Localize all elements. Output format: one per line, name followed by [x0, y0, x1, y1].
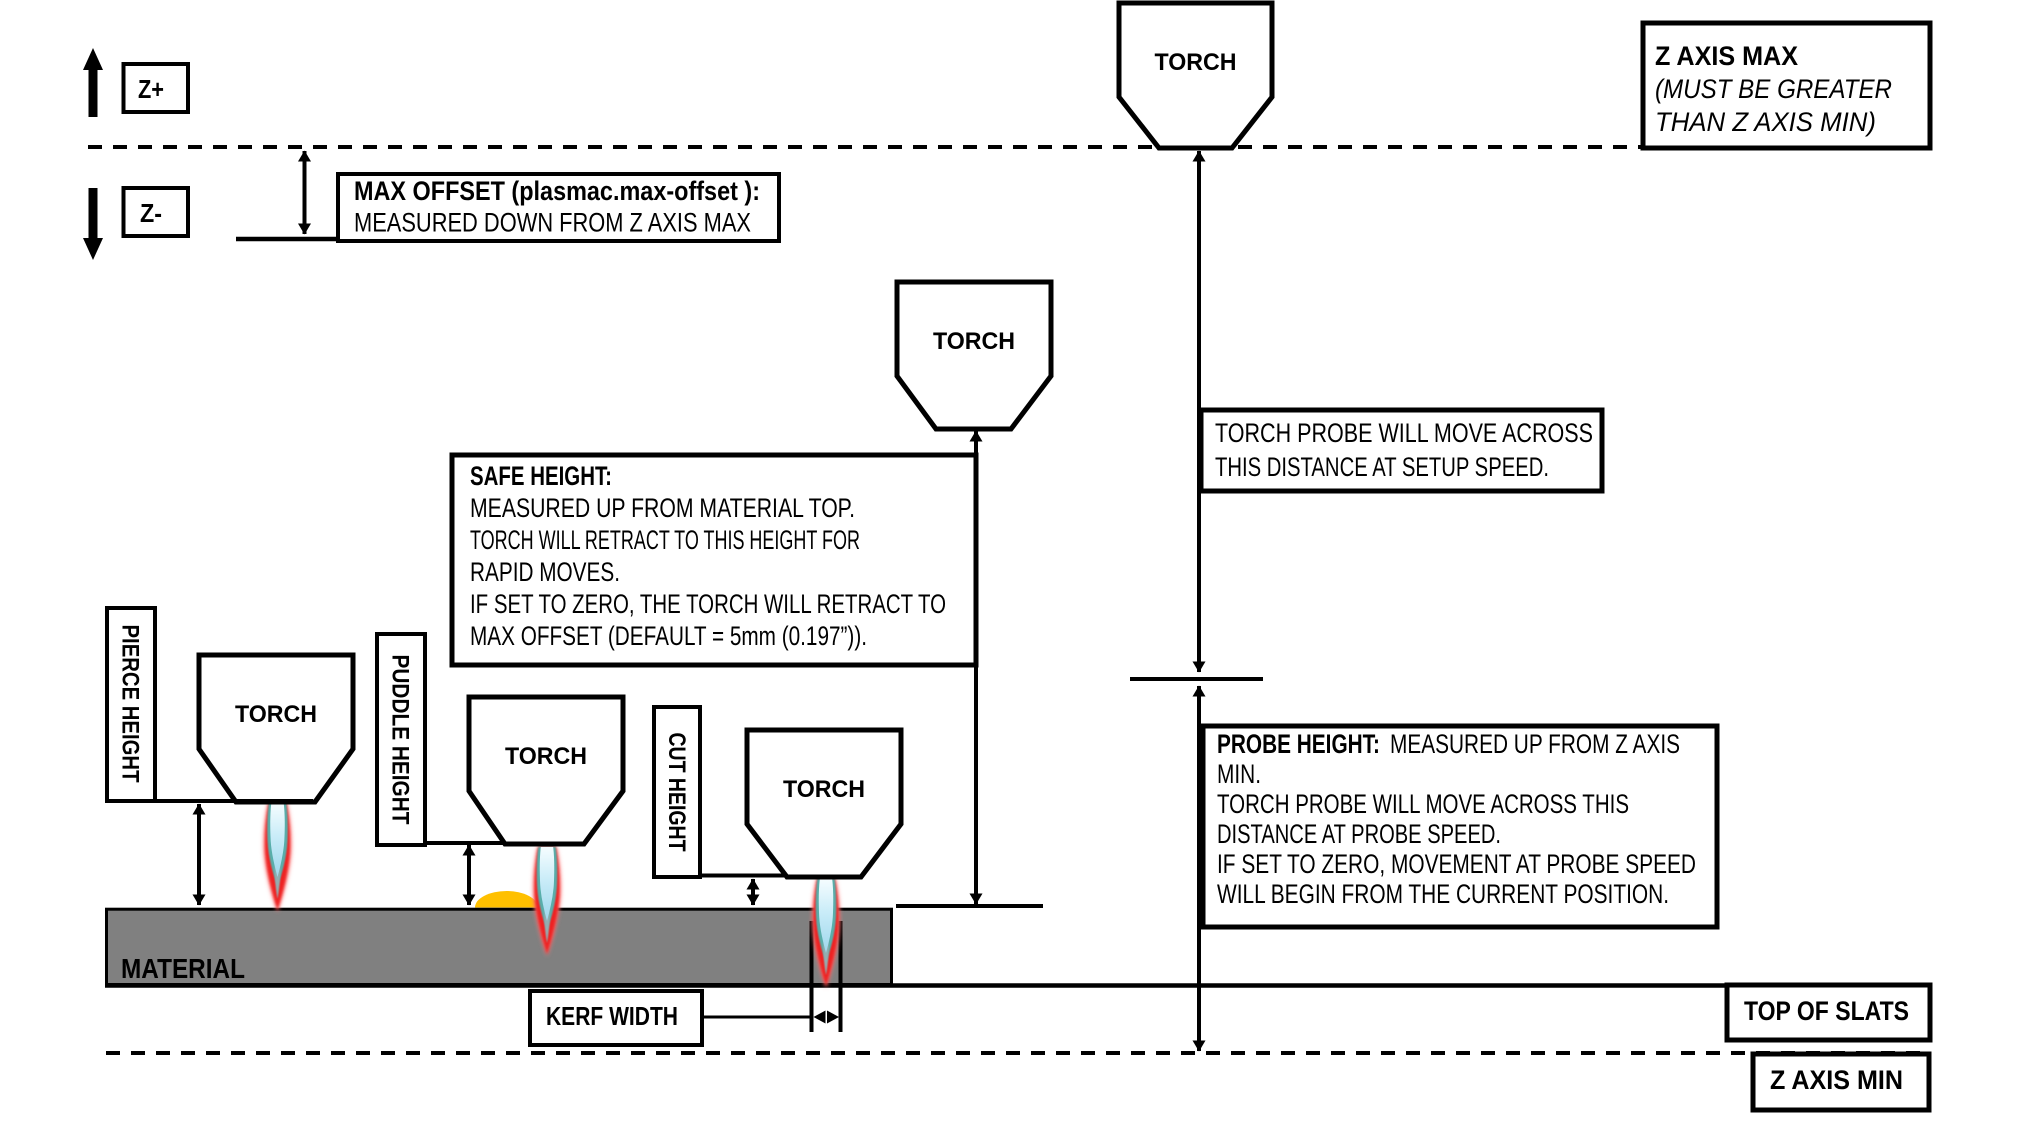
svg-text:RAPID MOVES.: RAPID MOVES. — [470, 557, 620, 587]
svg-text:Z AXIS MAX: Z AXIS MAX — [1655, 41, 1798, 71]
svg-text:MIN.: MIN. — [1217, 759, 1261, 789]
svg-text:SAFE HEIGHT:: SAFE HEIGHT: — [470, 461, 612, 491]
svg-text:KERF WIDTH: KERF WIDTH — [546, 1001, 678, 1031]
svg-text:IF SET TO ZERO, MOVEMENT AT P: IF SET TO ZERO, MOVEMENT AT PROBE SPEED — [1217, 849, 1696, 879]
svg-text:MEASURED UP FROM Z AXIS: MEASURED UP FROM Z AXIS — [1390, 729, 1680, 759]
svg-text:THAN Z AXIS MIN): THAN Z AXIS MIN) — [1655, 107, 1876, 137]
svg-text:TORCH: TORCH — [933, 328, 1015, 355]
svg-text:TORCH PROBE WILL MOVE ACROSS T: TORCH PROBE WILL MOVE ACROSS THIS — [1217, 789, 1629, 819]
svg-text:CUT HEIGHT: CUT HEIGHT — [663, 733, 690, 852]
svg-text:PROBE HEIGHT:: PROBE HEIGHT: — [1217, 729, 1380, 759]
svg-text:PUDDLE HEIGHT: PUDDLE HEIGHT — [387, 655, 414, 825]
svg-text:PIERCE HEIGHT: PIERCE HEIGHT — [117, 625, 144, 783]
svg-text:TORCH WILL RETRACT TO THIS HEI: TORCH WILL RETRACT TO THIS HEIGHT FOR — [470, 525, 860, 555]
svg-text:TORCH: TORCH — [505, 743, 587, 770]
svg-text:MATERIAL: MATERIAL — [121, 953, 245, 984]
svg-text:TORCH PROBE WILL MOVE ACROSS: TORCH PROBE WILL MOVE ACROSS — [1215, 418, 1593, 448]
svg-text:TORCH: TORCH — [783, 776, 865, 803]
svg-text:WILL BEGIN FROM THE CURRENT PO: WILL BEGIN FROM THE CURRENT POSITION. — [1217, 879, 1669, 909]
svg-text:Z AXIS MIN: Z AXIS MIN — [1770, 1065, 1903, 1095]
svg-text:IF SET TO ZERO, THE TORCH WILL: IF SET TO ZERO, THE TORCH WILL RETRACT T… — [470, 589, 946, 619]
svg-text:THIS DISTANCE AT SETUP SPEED.: THIS DISTANCE AT SETUP SPEED. — [1215, 452, 1549, 482]
svg-text:MAX OFFSET (DEFAULT = 5mm (0.1: MAX OFFSET (DEFAULT = 5mm (0.197”)). — [470, 621, 867, 651]
svg-text:Z+: Z+ — [138, 74, 164, 104]
svg-text:MAX OFFSET (plasmac.max-offset: MAX OFFSET (plasmac.max-offset ): — [354, 176, 760, 206]
svg-text:TORCH: TORCH — [235, 701, 317, 728]
svg-text:MEASURED DOWN FROM Z AXIS MAX: MEASURED DOWN FROM Z AXIS MAX — [354, 208, 751, 238]
svg-text:(MUST BE GREATER: (MUST BE GREATER — [1655, 74, 1892, 104]
svg-text:TORCH: TORCH — [1155, 49, 1237, 76]
svg-text:Z-: Z- — [140, 198, 162, 228]
svg-text:MEASURED UP FROM MATERIAL TOP.: MEASURED UP FROM MATERIAL TOP. — [470, 493, 855, 523]
svg-text:TOP OF SLATS: TOP OF SLATS — [1744, 996, 1909, 1026]
svg-text:DISTANCE AT PROBE SPEED.: DISTANCE AT PROBE SPEED. — [1217, 819, 1501, 849]
